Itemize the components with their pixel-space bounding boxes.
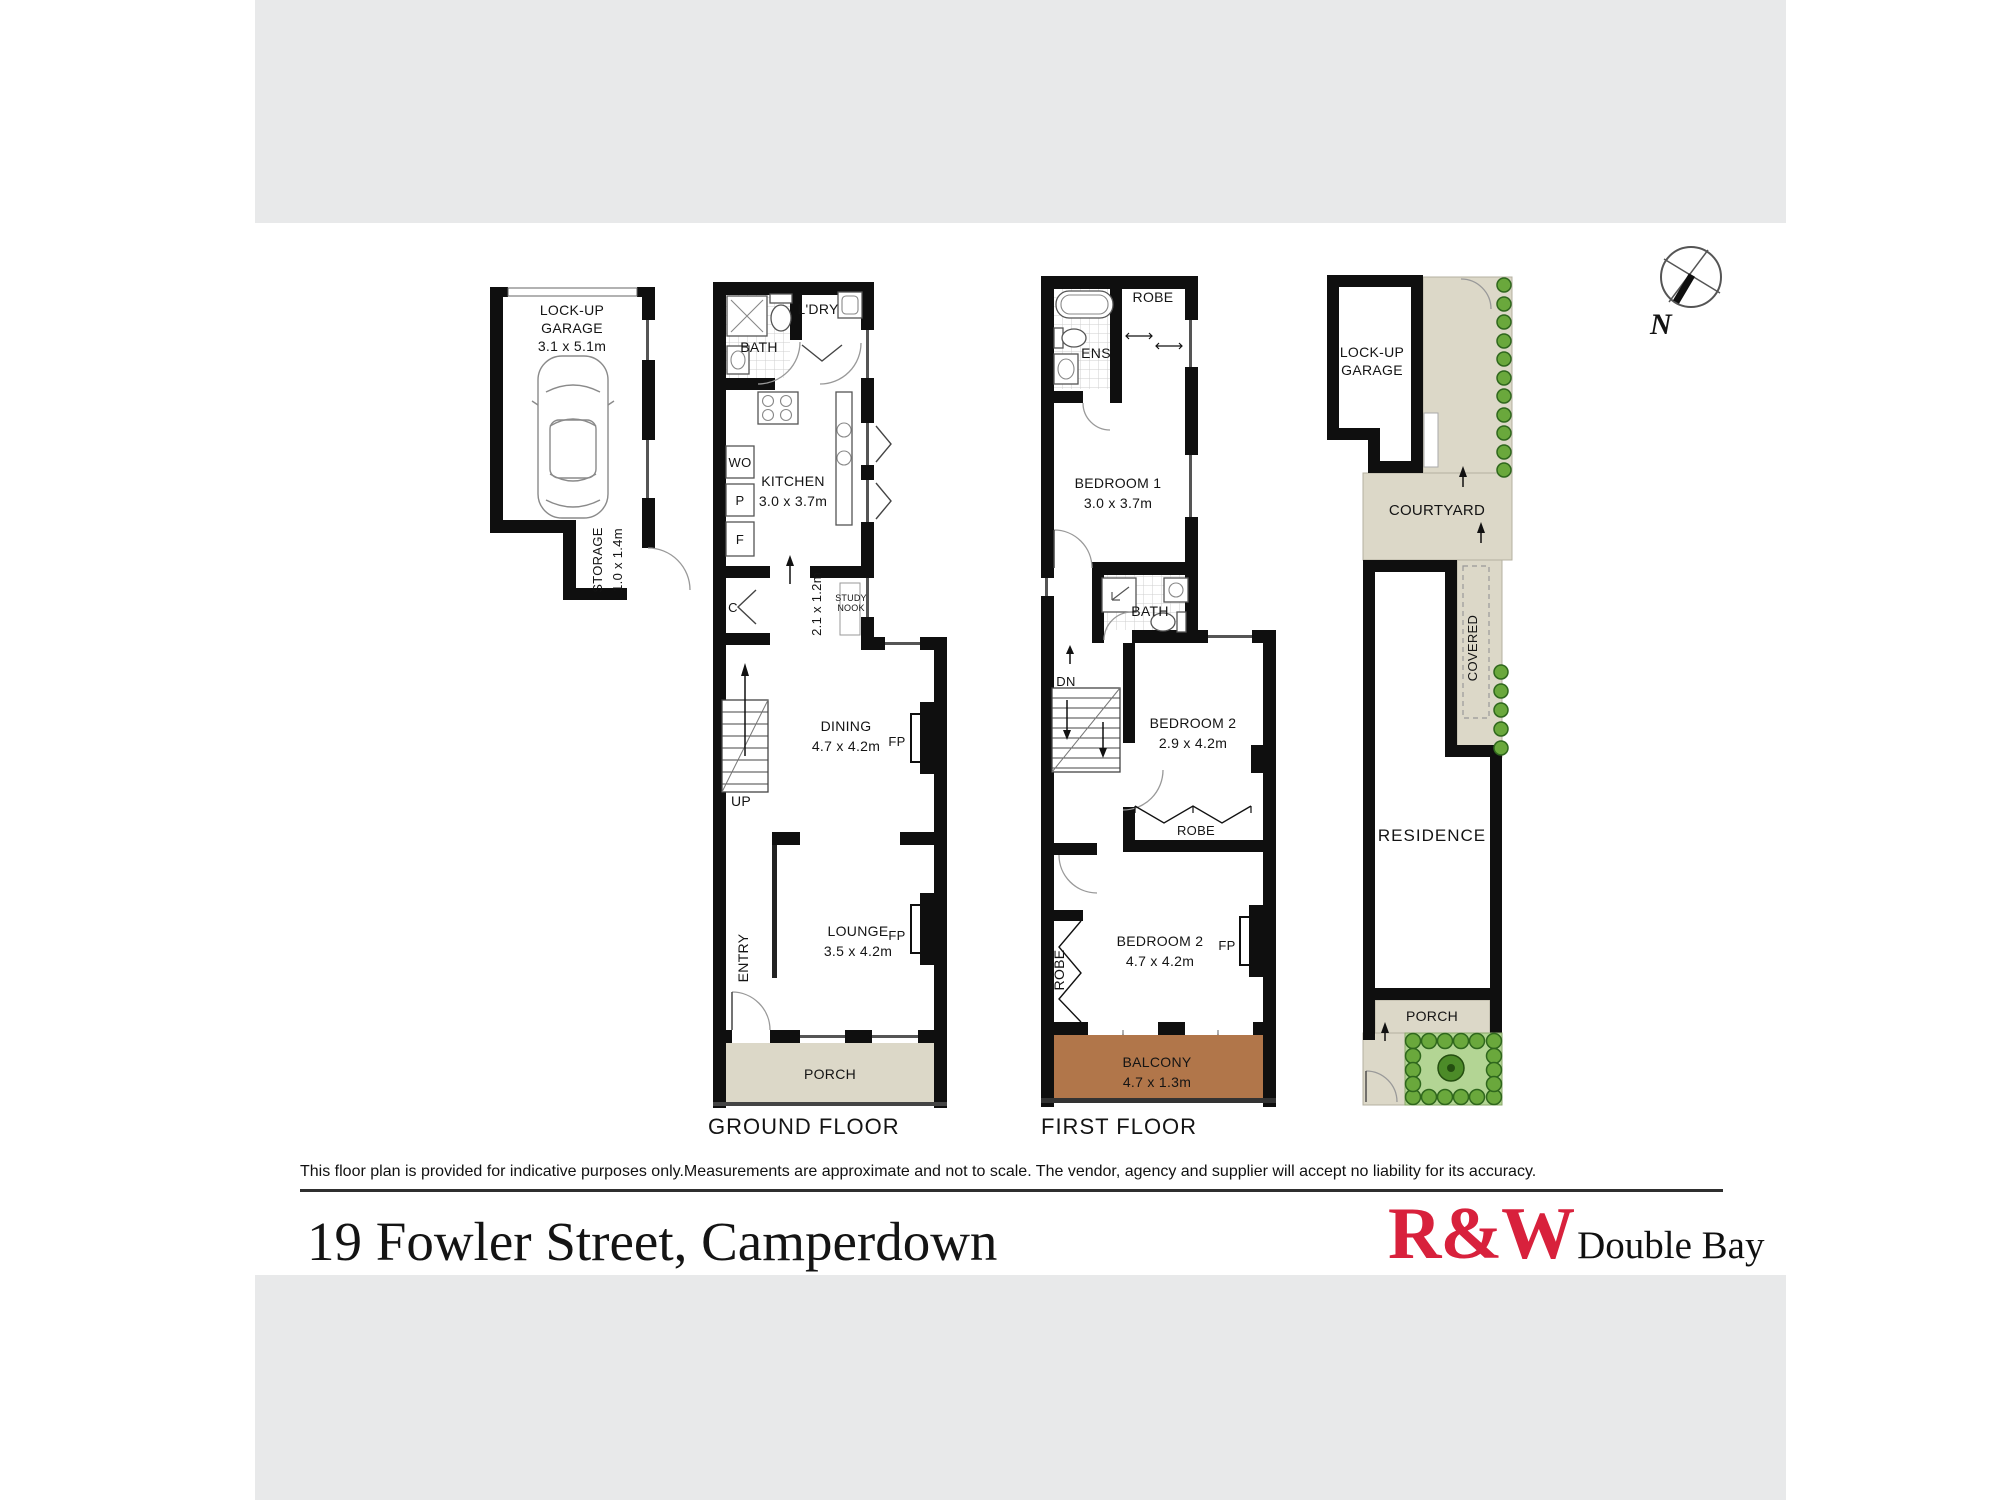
- dining-fp-label: FP: [888, 734, 905, 749]
- balcony-dim: 4.7 x 1.3m: [1123, 1074, 1191, 1090]
- ground-walls: [713, 282, 947, 1108]
- kitchen-label: KITCHEN: [761, 473, 825, 489]
- front-door-swing: [732, 992, 770, 1030]
- bedroom1-label: BEDROOM 1: [1075, 475, 1162, 491]
- ensuite-label: ENS: [1081, 345, 1111, 361]
- car-icon: [532, 356, 614, 518]
- wall-oven-label: WO: [729, 455, 752, 470]
- bed3-fireplace: [1240, 917, 1250, 965]
- cupboard-label: C: [728, 600, 738, 615]
- courtyard-label: COURTYARD: [1389, 502, 1485, 519]
- dining-fireplace: [911, 714, 921, 762]
- pantry-label: P: [736, 493, 745, 508]
- kitchen-bench: [836, 392, 852, 525]
- disclaimer-text: This floor plan is provided for indicati…: [300, 1163, 1730, 1181]
- first-floor-plan: ENS ROBE BEDROOM 1 3.0 x 3.7m BATH DN BE…: [1041, 276, 1276, 1139]
- storage-dim: 1.0 x 1.4m: [610, 528, 625, 592]
- first-floor-title: FIRST FLOOR: [1041, 1114, 1197, 1139]
- ground-fixtures: [722, 292, 862, 1030]
- path-area: [1363, 1033, 1405, 1105]
- garage-dim: 3.1 x 5.1m: [538, 338, 606, 354]
- agency-logo-mark: R&W: [1388, 1192, 1574, 1277]
- ground-porch-label: PORCH: [804, 1066, 856, 1082]
- laundry-label: L'DRY: [797, 301, 839, 317]
- ff-basin-icon: [1164, 578, 1188, 602]
- toilet-icon: [770, 294, 792, 303]
- property-address: 19 Fowler Street, Camperdown: [307, 1210, 997, 1273]
- garage-label2: GARAGE: [541, 320, 603, 336]
- bedroom3-dim: 4.7 x 4.2m: [1126, 953, 1194, 969]
- bedroom2-dim: 2.9 x 4.2m: [1159, 735, 1227, 751]
- robe-top-label: ROBE: [1133, 289, 1174, 305]
- dining-dim: 4.7 x 4.2m: [812, 738, 880, 754]
- garage-label: LOCK-UP: [540, 302, 604, 318]
- ground-floor-plan: LOCK-UP GARAGE 3.1 x 5.1m STORAGE 1.0 x …: [490, 282, 947, 1139]
- residence-label: RESIDENCE: [1378, 826, 1486, 845]
- agency-office-name: Double Bay: [1577, 1223, 1764, 1268]
- stairs-down-label: DN: [1056, 674, 1075, 689]
- garage-door: [508, 288, 637, 296]
- lounge-label: LOUNGE: [828, 923, 889, 939]
- bedroom2-label: BEDROOM 2: [1150, 715, 1237, 731]
- nook-dim: 2.1 x 1.2m: [809, 572, 824, 636]
- agency-logo: R&W Double Bay: [1388, 1192, 1764, 1277]
- site-garage-label: LOCK-UP: [1340, 344, 1404, 360]
- stairs-up-label: UP: [731, 793, 751, 809]
- compass-icon: N: [1649, 247, 1721, 341]
- entry-label: ENTRY: [735, 933, 751, 982]
- robe-rail: [1156, 343, 1182, 349]
- study-nook-label: STUDY: [835, 593, 867, 603]
- robe-left-label: ROBE: [1051, 950, 1067, 991]
- robe-mid-label: ROBE: [1177, 823, 1215, 838]
- lounge-fireplace: [911, 905, 921, 953]
- bedroom3-label: BEDROOM 2: [1117, 933, 1204, 949]
- lounge-dim: 3.5 x 4.2m: [824, 943, 892, 959]
- ff-bath-label: BATH: [1131, 603, 1169, 619]
- kitchen-dim: 3.0 x 3.7m: [759, 493, 827, 509]
- site-plan: LOCK-UP GARAGE COURTYARD COVERED RESIDEN…: [1333, 277, 1512, 1105]
- storage-label: STORAGE: [590, 527, 605, 592]
- site-porch-label: PORCH: [1406, 1008, 1458, 1024]
- robe-rail: [1126, 333, 1152, 339]
- study-nook-label2: NOOK: [837, 603, 864, 613]
- dining-label: DINING: [821, 718, 872, 734]
- lounge-fp-label: FP: [888, 928, 905, 943]
- ground-floor-title: GROUND FLOOR: [708, 1114, 900, 1139]
- floorplan-sheet: LOCK-UP GARAGE 3.1 x 5.1m STORAGE 1.0 x …: [0, 0, 2000, 1500]
- cupboard-doors: [738, 590, 756, 624]
- compass-north-label: N: [1649, 308, 1673, 341]
- fridge-label: F: [736, 532, 744, 547]
- covered-label: COVERED: [1465, 615, 1480, 681]
- stairs-up: [722, 663, 768, 792]
- ff-toilet-icon: [1177, 612, 1186, 632]
- bath-label: BATH: [740, 339, 778, 355]
- bedroom3-fp-label: FP: [1218, 938, 1235, 953]
- stairs-down: [1052, 688, 1120, 772]
- bedroom1-dim: 3.0 x 3.7m: [1084, 495, 1152, 511]
- balcony-label: BALCONY: [1122, 1054, 1191, 1070]
- site-garage-label2: GARAGE: [1341, 362, 1403, 378]
